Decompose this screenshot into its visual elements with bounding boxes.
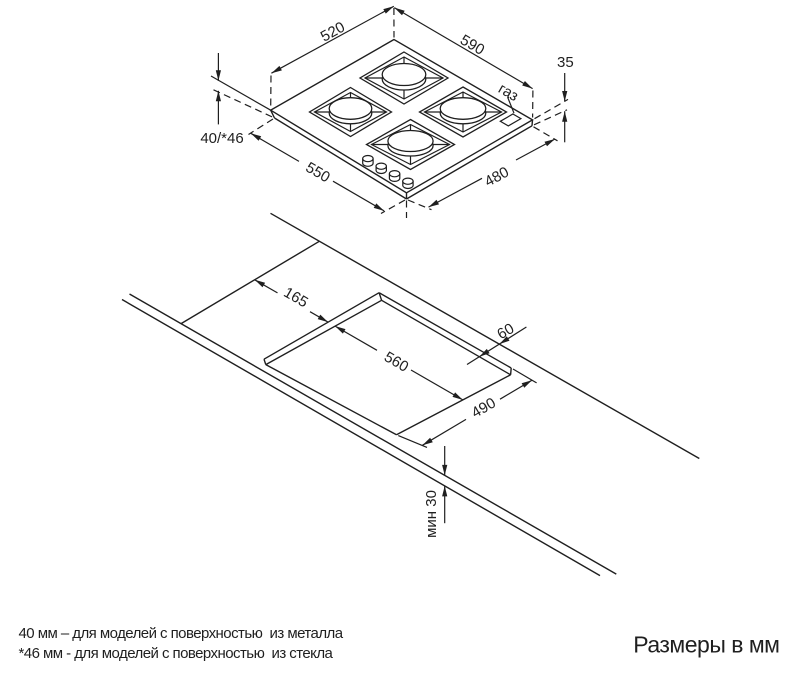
svg-text:35: 35 [557, 54, 574, 71]
svg-text:мин 30: мин 30 [423, 490, 440, 538]
svg-text:165: 165 [281, 284, 311, 311]
svg-text:60: 60 [494, 320, 517, 343]
svg-text:40/*46: 40/*46 [200, 130, 243, 147]
svg-text:40 мм – для моделей с поверхно: 40 мм – для моделей с поверхностью из ме… [19, 625, 344, 642]
svg-text:560: 560 [381, 348, 411, 375]
svg-text:520: 520 [318, 19, 348, 46]
svg-text:490: 490 [469, 394, 499, 421]
svg-text:590: 590 [457, 31, 487, 58]
svg-text:Размеры в мм: Размеры в мм [633, 632, 779, 658]
svg-text:480: 480 [482, 164, 512, 191]
svg-text:550: 550 [303, 159, 333, 186]
svg-text:*46 мм - для моделей с поверхн: *46 мм - для моделей с поверхностью из с… [19, 645, 334, 662]
